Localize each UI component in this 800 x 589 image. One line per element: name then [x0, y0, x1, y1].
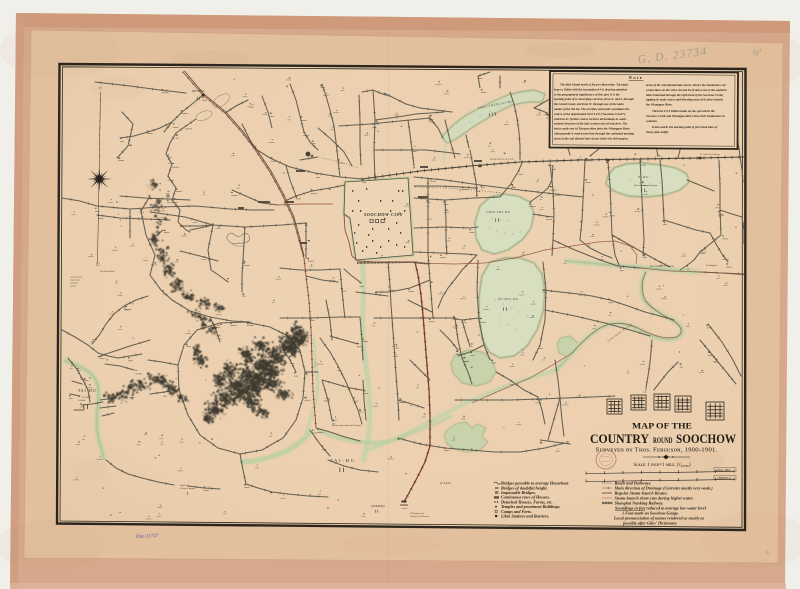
svg-text:CHINESE LI: CHINESE LI	[717, 477, 731, 480]
svg-text:the Grand Canal, and from W. t: the Grand Canal, and from W. through one…	[554, 102, 624, 106]
svg-text:(LAKE): (LAKE)	[440, 482, 452, 485]
svg-text:MEISHOW CREEK: MEISHOW CREEK	[649, 265, 674, 268]
svg-text:Soochow Creek and Whangpoo Riv: Soochow Creek and Whangpoo River have th…	[646, 114, 725, 118]
svg-text:(One mile and partly large: (One mile and partly large	[634, 184, 657, 187]
svg-text:❙❙: ❙❙	[494, 218, 500, 222]
svg-text:❙: ❙	[186, 491, 188, 495]
svg-text:❙❙: ❙❙	[502, 307, 508, 311]
svg-text:areas of the soft alluvial lak: areas of the soft alluvial lake-shores b…	[554, 136, 629, 140]
svg-text:common.: common.	[646, 119, 658, 123]
svg-text:Old Canal Road: Old Canal Road	[100, 271, 115, 273]
svg-text:Sᴜʀᴠᴇʏᴇᴅ ʙʏ Tʜᴏs. Fᴇʀɢᴜsᴏɴ, 19: Sᴜʀᴠᴇʏᴇᴅ ʙʏ Tʜᴏs. Fᴇʀɢᴜsᴏɴ, 1900-1901.	[596, 447, 718, 454]
svg-text:Note: Note	[628, 75, 644, 80]
svg-text:(TA-WU): (TA-WU)	[82, 396, 91, 399]
svg-text:Lighthouse: Lighthouse	[179, 484, 189, 487]
svg-text:(ɡ¹: (ɡ¹	[753, 48, 761, 56]
svg-text:Then the # # # Tablet stands o: Then the # # # Tablet stands on the spot…	[652, 109, 715, 113]
svg-text:lakes branched through the rig: lakes branched through the right bend of…	[646, 93, 724, 97]
svg-text:CHIN-CHI-WU: CHIN-CHI-WU	[486, 210, 511, 214]
svg-text:Banks intermixed with Pampas: Banks intermixed with Pampas	[332, 424, 362, 427]
svg-text:To Hangchow via: To Hangchow via	[410, 513, 424, 515]
svg-text:Likin Stations and Barriers.: Likin Stations and Barriers.	[500, 514, 549, 519]
svg-text:SOOCHOW: SOOCHOW	[676, 431, 736, 446]
svg-text:TAI-HU: TAI-HU	[78, 388, 97, 393]
svg-text:GEOG. MILE: GEOG. MILE	[716, 469, 731, 472]
svg-text:tapping its main source and di: tapping its main source and diverting mo…	[646, 98, 724, 102]
svg-text:❙❙: ❙❙	[82, 404, 89, 409]
svg-text:❙❙: ❙❙	[640, 188, 646, 192]
svg-text:❙❙: ❙❙	[196, 96, 201, 100]
svg-text:the Whangpoo River.: the Whangpoo River.	[646, 103, 673, 107]
svg-text:areas of the self-alluvial lak: areas of the self-alluvial lake-shores. …	[646, 83, 726, 87]
svg-text:To 3 miles W. of Quinsan: To 3 miles W. of Quinsan	[700, 153, 720, 156]
svg-text:connections on the Chin-chi an: connections on the Chin-chi and Tu (Lake…	[646, 88, 727, 92]
svg-text:❙❙: ❙❙	[338, 467, 345, 472]
svg-text:To Shanghai.: To Shanghai.	[706, 265, 718, 267]
svg-text:COUNTRY: COUNTRY	[590, 431, 650, 446]
svg-text:possible after Giles' Dictiona: possible after Giles' Dictionary.	[622, 520, 677, 525]
svg-text:Kashing & old Wan-tsin: Kashing & old Wan-tsin	[409, 515, 429, 518]
svg-text:SHE-SHAN: SHE-SHAN	[192, 90, 204, 93]
svg-text:source of the degenerated rive: source of the degenerated river # # # (“…	[553, 111, 626, 116]
svg-text:(WUKIANG): (WUKIANG)	[371, 505, 385, 508]
svg-text:which in its' further course r: which in its' further course receives al…	[554, 117, 627, 121]
svg-text:❙❙: ❙❙	[374, 509, 379, 513]
svg-text:Sᴄᴀʟᴇ: 1 ɪɴᴄʜ=1 ᴍɪʟᴇ. (¹⁄₆₃₃₆₀: Sᴄᴀʟᴇ: 1 ɪɴᴄʜ=1 ᴍɪʟᴇ. (¹⁄₆₃₃₆₀)	[633, 462, 691, 468]
svg-text:outlets of the Tai-hu. The ov: outlets of the Tai-hu. The overflow east…	[554, 107, 630, 111]
svg-text:ROUND: ROUND	[653, 435, 673, 445]
svg-text:The little Island north of Ka-: The little Island north of Ka-po-chiau-m…	[560, 83, 629, 87]
svg-text:(George Portugee): (George Portugee)	[180, 487, 195, 490]
svg-text:bears a Tablet with the inscri: bears a Tablet with the inscription # # …	[554, 87, 628, 91]
svg-text:basin south-east of Yin-gan-sh: basin south-east of Yin-gan-shien joins …	[554, 127, 630, 131]
svg-text:I: I	[117, 207, 118, 210]
svg-text:MAP OF THE: MAP OF THE	[632, 421, 692, 431]
svg-text:to the geographical significan: to the geographical significance of this…	[554, 92, 620, 96]
svg-text:heavy junk-traffic.: heavy junk-traffic.	[646, 130, 670, 134]
svg-text:TAI-HU: TAI-HU	[330, 458, 356, 463]
svg-text:O-WU: O-WU	[638, 175, 649, 179]
svg-text:HSIEHHSIATANG: HSIEHHSIATANG	[490, 158, 514, 161]
svg-text:meeting point of 9 converging: meeting point of 9 converging currents, …	[554, 97, 634, 101]
svg-text:Subsequently it would seem tha: Subsequently it would seem that through …	[554, 132, 634, 136]
svg-text:TU-SEU-WU: TU-SEU-WU	[498, 297, 519, 301]
svg-text:easterly direction of the lake: easterly direction of the lake systems e…	[554, 122, 628, 126]
svg-text:It also marks the meeting poin: It also marks the meeting point of five …	[651, 125, 718, 129]
